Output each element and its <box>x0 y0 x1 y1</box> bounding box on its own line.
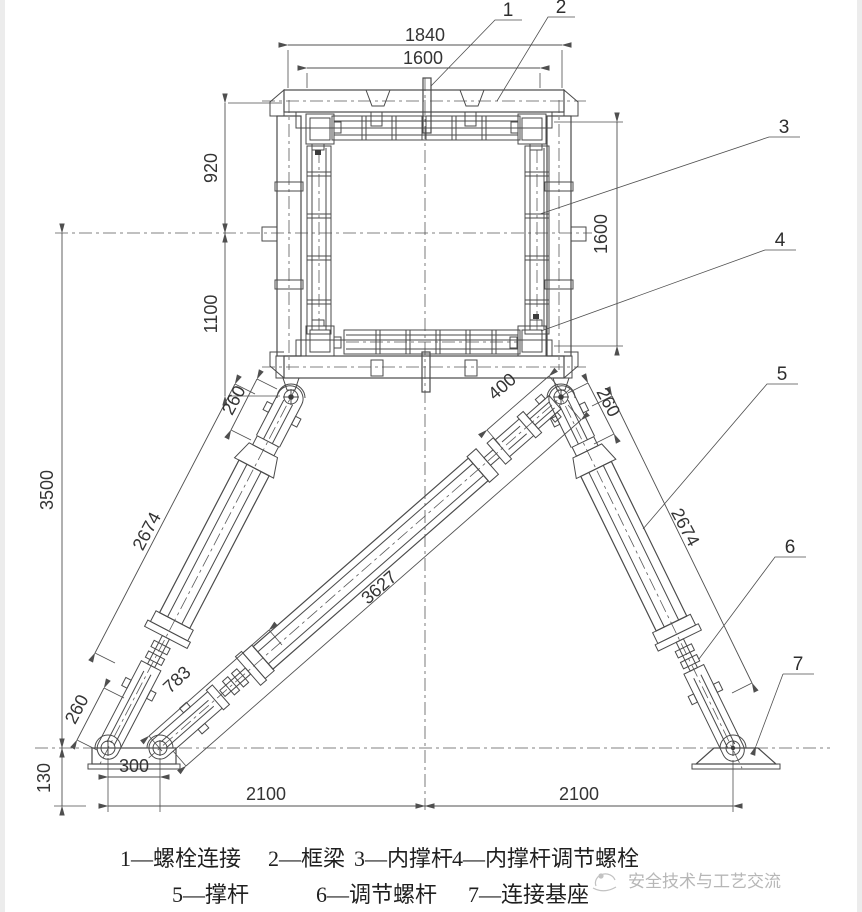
legend-item-2: 2—框梁 <box>268 846 345 871</box>
adjusting-bolt-top-left <box>315 150 321 155</box>
inner-struts <box>306 114 549 356</box>
dim-left-upper: 920 <box>201 153 221 183</box>
frame-beams <box>262 78 586 398</box>
dim-leg-left: 2674 <box>128 509 164 554</box>
dim-top-outer: 1840 <box>405 25 445 45</box>
watermark-logo-icon <box>595 874 615 886</box>
dim-span-right: 2100 <box>559 784 599 804</box>
pivot-crosshairs <box>100 389 741 756</box>
legend-item-5: 5—撑杆 <box>172 882 249 907</box>
watermark: 安全技术与工艺交流 <box>593 872 781 891</box>
watermark-text: 安全技术与工艺交流 <box>628 872 781 891</box>
centerlines <box>35 78 830 810</box>
right-edge-strip <box>857 0 862 912</box>
right-leg <box>533 374 763 779</box>
dim-line <box>95 384 235 653</box>
dim-overall-height: 3500 <box>37 470 57 510</box>
callout-7-leader <box>756 674 814 746</box>
corner-adjuster-blocks <box>306 114 546 356</box>
callout-6: 6 <box>785 537 796 558</box>
legend-item-7: 7—连接基座 <box>468 882 589 907</box>
dim-diag-strut: 3627 <box>357 567 400 608</box>
engineering-drawing-page: 1840 1600 920 1100 1600 3500 130 300 210… <box>0 0 862 912</box>
adjuster-bolt-nuts <box>312 122 542 348</box>
dim-clevis-top-right: 260 <box>592 384 624 420</box>
strut-top-collar <box>467 449 498 482</box>
pivot-pins <box>100 389 741 756</box>
dim-span-left: 2100 <box>246 784 286 804</box>
legend-item-6: 6—调节螺杆 <box>316 882 437 907</box>
left-leg <box>78 373 319 776</box>
diagonal-strut-centerline <box>149 389 570 758</box>
legend: 1—螺栓连接 2—框梁 3—内撑杆 4—内撑杆调节螺栓 5—撑杆 6—调节螺杆 … <box>120 846 639 907</box>
leg-pivot-lobes <box>277 384 575 398</box>
dim-base-height: 130 <box>34 763 54 793</box>
legend-item-3: 3—内撑杆 <box>354 846 453 871</box>
right-base <box>692 735 780 769</box>
top-beam-stub <box>465 112 476 126</box>
technical-drawing: 1840 1600 920 1100 1600 3500 130 300 210… <box>0 0 862 912</box>
top-beam-stub <box>371 112 382 126</box>
watermark-logo-swirl <box>593 887 616 891</box>
dim-adjuster-top: 400 <box>484 369 520 404</box>
bottom-center-pin <box>422 352 430 392</box>
extension-lines <box>54 50 752 812</box>
callout-1: 1 <box>503 0 514 21</box>
top-center-pin <box>423 78 431 133</box>
dim-lower-link: 783 <box>159 662 195 697</box>
right-mid-tab <box>571 227 586 241</box>
dim-left-lower: 1100 <box>201 295 221 334</box>
dim-clevis-top-left: 260 <box>218 382 250 418</box>
dimensions: 1840 1600 920 1100 1600 3500 130 300 210… <box>34 25 752 812</box>
adjusting-bolt-bottom-right <box>533 314 539 319</box>
dim-right-side: 1600 <box>591 214 611 254</box>
column-splice-plates <box>275 182 573 289</box>
callout-4: 4 <box>775 230 786 251</box>
dim-clevis-bottom-left: 260 <box>61 691 93 727</box>
right-base-sole <box>692 764 780 769</box>
pivot-dot <box>731 746 735 750</box>
legend-item-1: 1—螺栓连接 <box>120 846 241 871</box>
watermark-logo-dot <box>598 873 603 878</box>
callout-2: 2 <box>556 0 567 18</box>
callout-leaders <box>431 17 806 659</box>
dim-base-pin-spacing: 300 <box>119 756 149 776</box>
left-mid-tab <box>262 227 277 241</box>
bottom-beam-stub <box>371 360 383 376</box>
leg-pivot-brackets <box>283 378 569 390</box>
dim-leg-right: 2674 <box>667 505 703 550</box>
left-edge-strip <box>0 0 5 912</box>
callout-3: 3 <box>779 117 790 138</box>
legend-item-4: 4—内撑杆调节螺栓 <box>452 846 639 871</box>
diagonal-strut <box>136 375 582 772</box>
dim-top-inner: 1600 <box>403 48 443 68</box>
bottom-beam-stub <box>465 360 477 376</box>
pivot-dot <box>558 394 564 400</box>
pivot-dot <box>288 394 294 400</box>
callout-7: 7 <box>793 654 804 675</box>
callout-5: 5 <box>777 364 788 385</box>
